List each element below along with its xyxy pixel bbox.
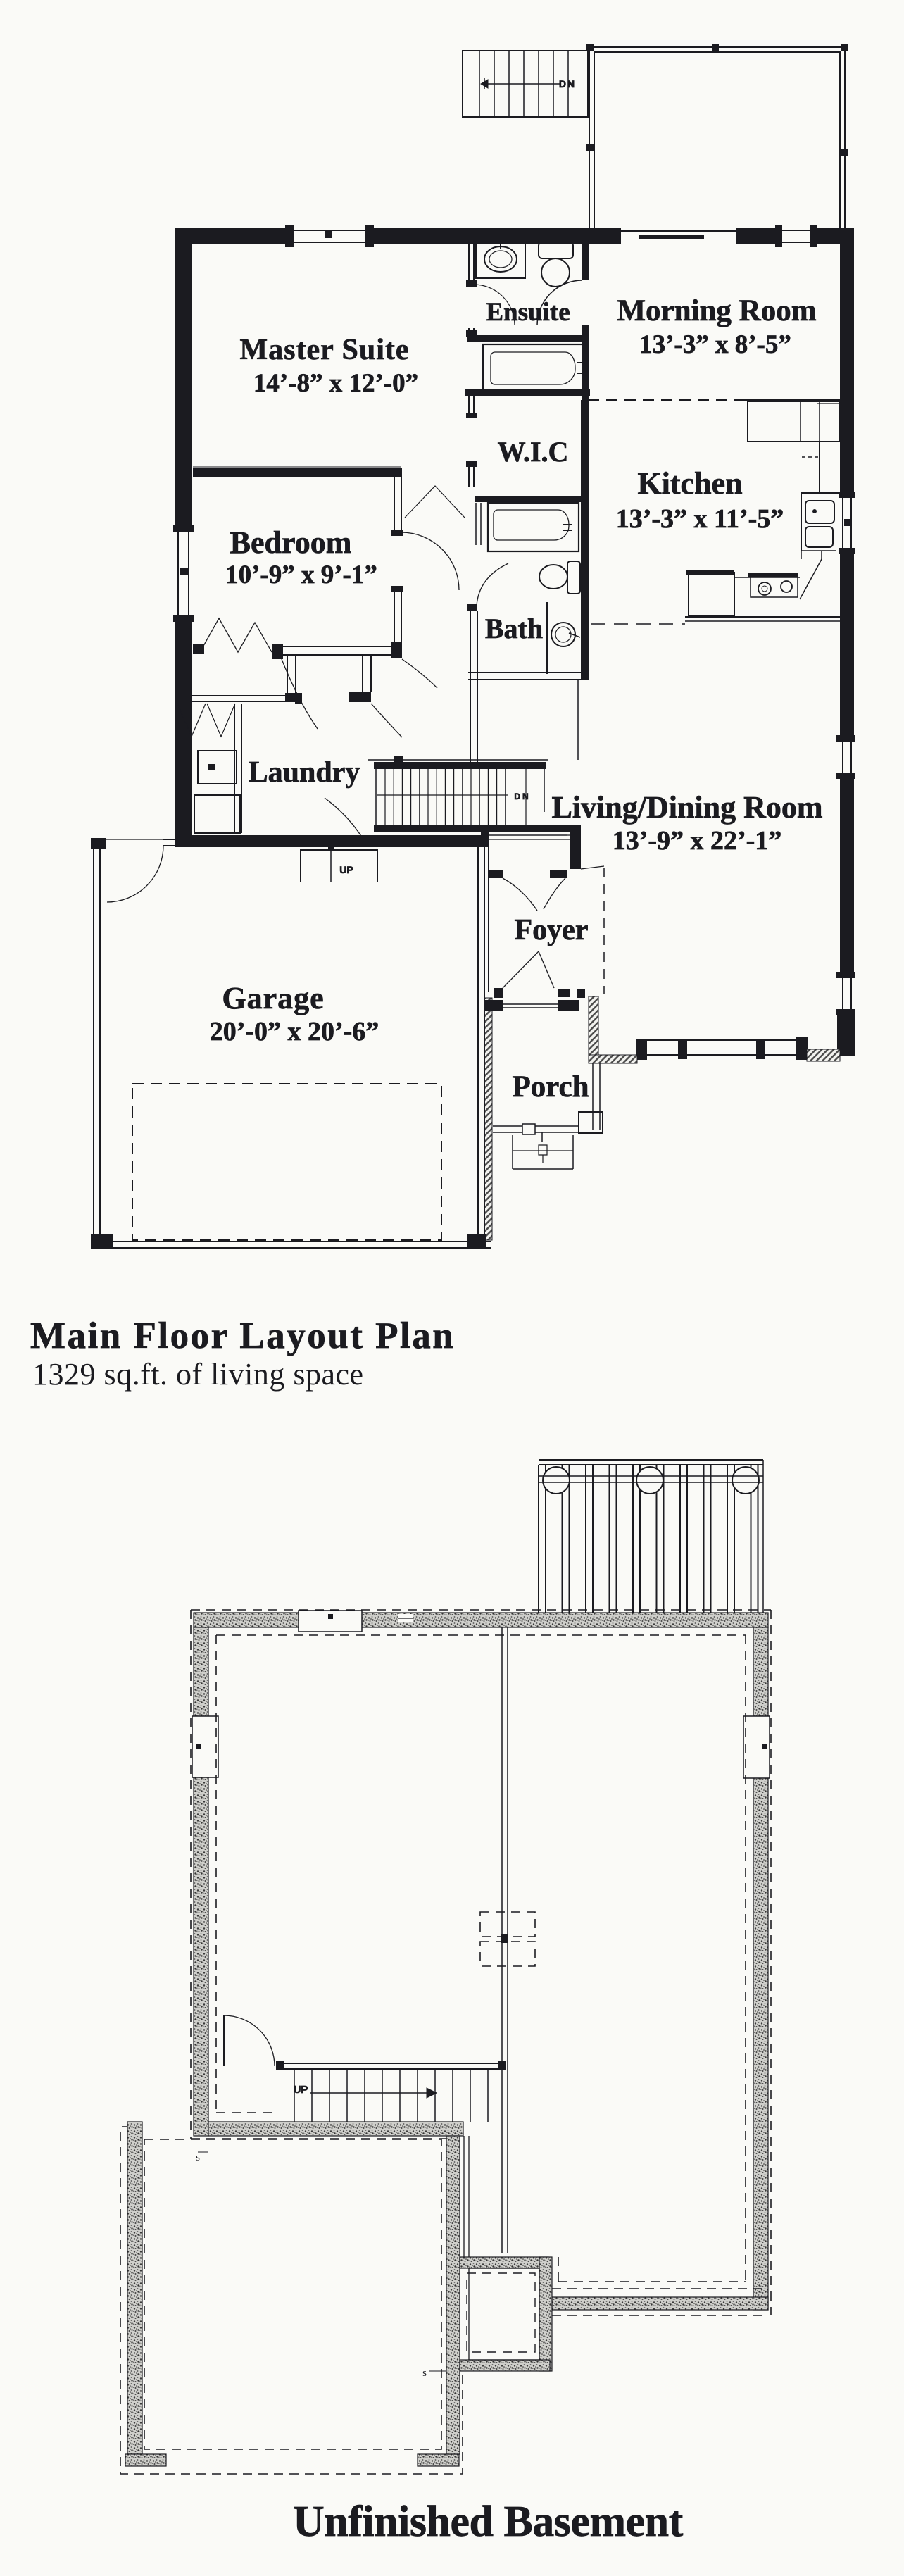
svg-text:UP: UP [339, 864, 353, 875]
svg-text:s: s [196, 2152, 200, 2163]
svg-text:10’-9” x 9’-1”: 10’-9” x 9’-1” [225, 561, 377, 589]
svg-text:Kitchen: Kitchen [637, 466, 742, 501]
svg-text:Bedroom: Bedroom [230, 525, 352, 560]
svg-text:Main Floor Layout Plan: Main Floor Layout Plan [30, 1315, 455, 1356]
svg-text:Foyer: Foyer [515, 914, 589, 946]
svg-text:s: s [422, 2368, 427, 2379]
svg-text:Garage: Garage [222, 981, 324, 1015]
svg-text:Laundry: Laundry [249, 756, 360, 789]
svg-text:14’-8” x 12’-0”: 14’-8” x 12’-0” [253, 369, 418, 398]
svg-text:DN: DN [559, 78, 576, 89]
svg-text:20’-0” x 20’-6”: 20’-0” x 20’-6” [210, 1017, 379, 1046]
svg-text:13’-3” x 11’-5”: 13’-3” x 11’-5” [616, 504, 784, 534]
svg-text:Bath: Bath [485, 613, 543, 644]
svg-text:W.I.C: W.I.C [498, 436, 569, 468]
svg-text:DN: DN [514, 792, 530, 801]
svg-text:Ensuite: Ensuite [486, 298, 570, 327]
svg-text:Living/Dining Room: Living/Dining Room [551, 790, 822, 825]
svg-text:Morning Room: Morning Room [617, 294, 816, 327]
svg-text:Master Suite: Master Suite [239, 334, 409, 366]
svg-text:13’-3” x 8’-5”: 13’-3” x 8’-5” [639, 330, 791, 359]
svg-text:Porch: Porch [512, 1070, 589, 1103]
svg-text:13’-9” x 22’-1”: 13’-9” x 22’-1” [613, 826, 782, 856]
svg-text:Unfinished Basement: Unfinished Basement [293, 2498, 684, 2546]
svg-text:UP: UP [294, 2084, 308, 2096]
svg-text:1329 sq.ft. of living space: 1329 sq.ft. of living space [32, 1357, 364, 1392]
